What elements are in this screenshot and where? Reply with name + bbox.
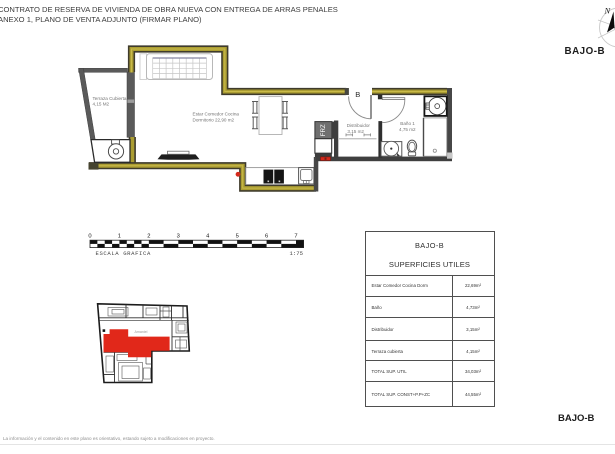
svg-text:3: 3 [177, 234, 180, 240]
svg-text:4,15 M2: 4,15 M2 [93, 102, 110, 107]
svg-text:2: 2 [147, 234, 150, 240]
svg-text:FRZ: FRZ [320, 124, 327, 136]
svg-text:Distribuidor: Distribuidor [347, 123, 371, 128]
svg-text:N: N [604, 7, 611, 16]
svg-text:Baño 1: Baño 1 [400, 121, 415, 126]
svg-text:Estar Comedor Cocina: Estar Comedor Cocina [193, 111, 240, 116]
svg-text:ESCALA GRAFICA: ESCALA GRAFICA [96, 250, 151, 257]
svg-text:7: 7 [294, 234, 297, 240]
svg-text:5: 5 [236, 234, 239, 240]
svg-text:6: 6 [265, 234, 268, 240]
svg-text:3,15 m2: 3,15 m2 [347, 129, 364, 134]
svg-text:Terraza Cubierta: Terraza Cubierta [93, 96, 127, 101]
svg-text:1:75: 1:75 [290, 250, 303, 257]
svg-text:Dormitorio 22,90 m2: Dormitorio 22,90 m2 [193, 117, 235, 122]
svg-text:B: B [355, 90, 360, 99]
svg-text:Amaniel: Amaniel [135, 330, 148, 334]
svg-text:0: 0 [88, 234, 91, 240]
svg-text:4: 4 [206, 234, 210, 240]
svg-text:4,75 m2: 4,75 m2 [399, 127, 416, 132]
svg-text:1: 1 [118, 234, 121, 240]
